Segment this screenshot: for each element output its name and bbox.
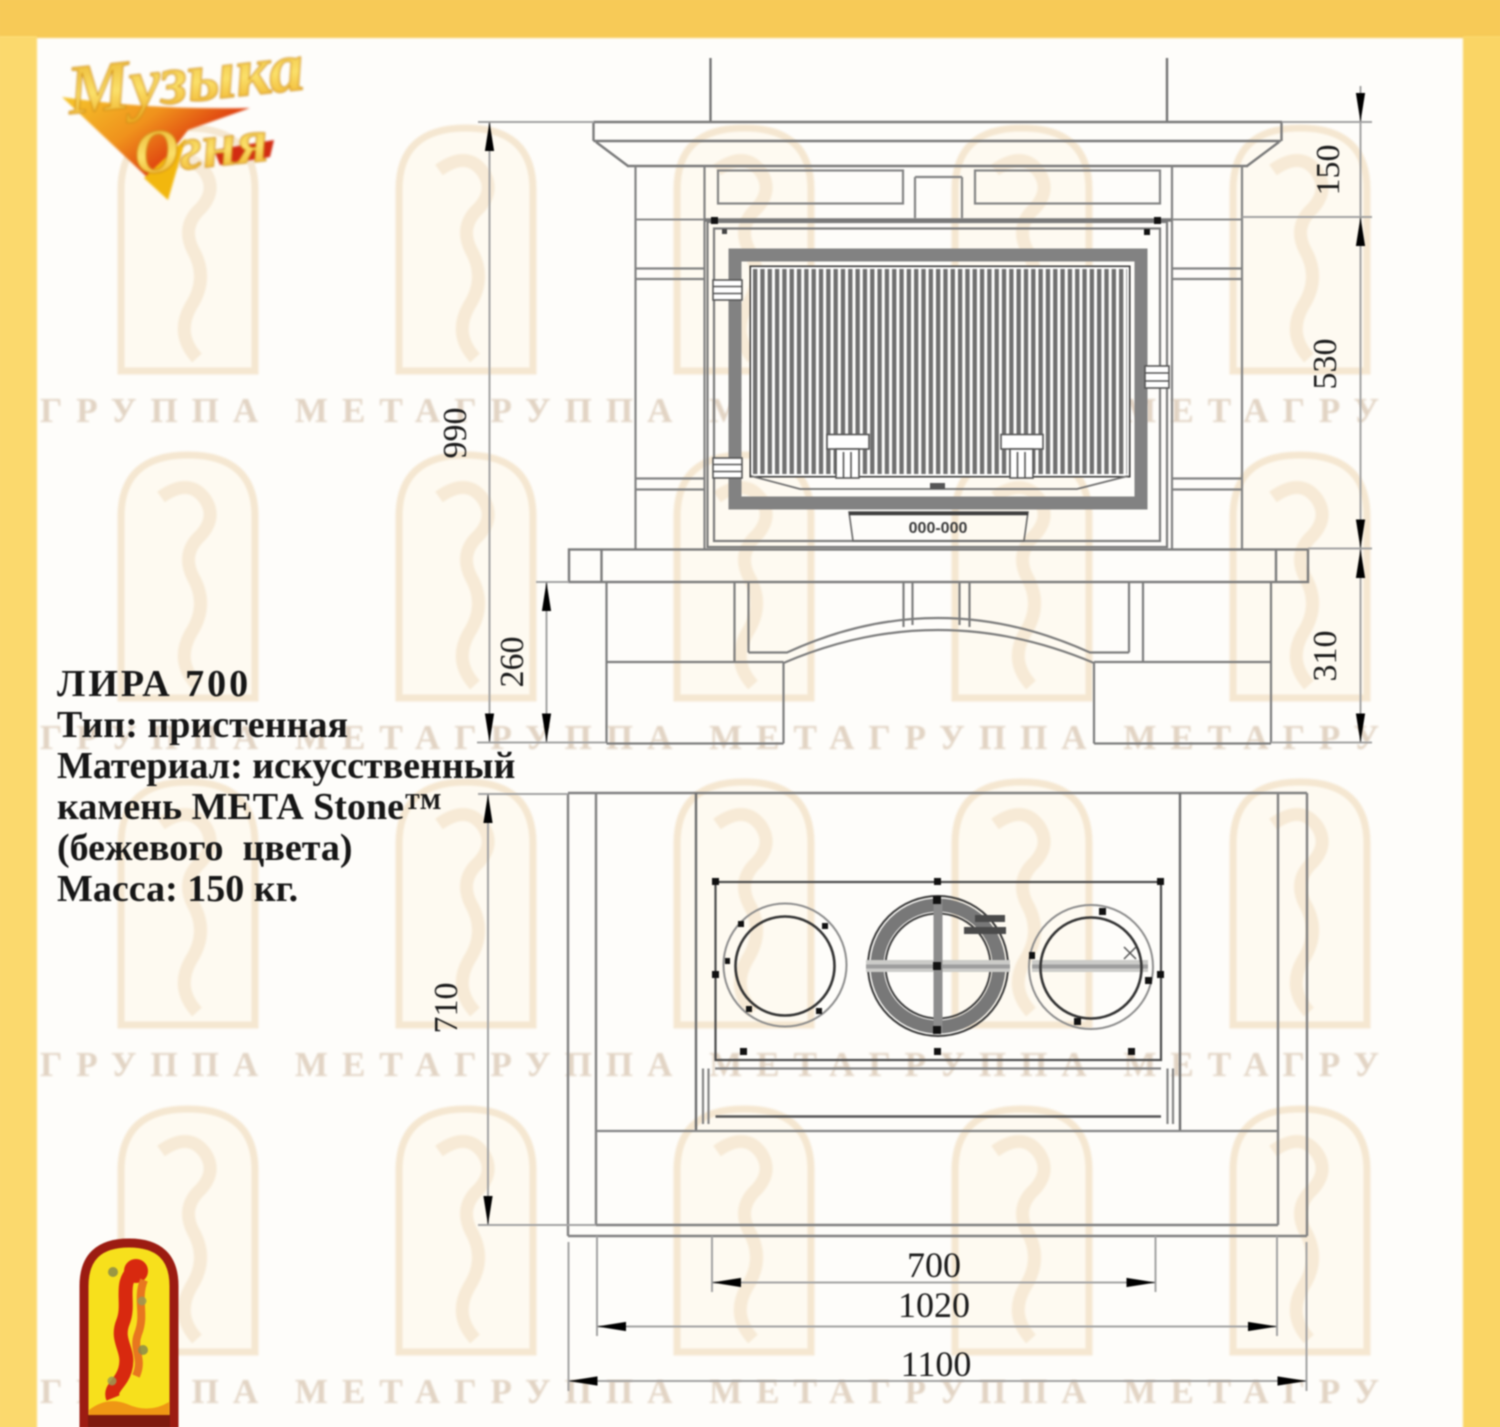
svg-text:150: 150 [1310, 145, 1347, 196]
svg-text:1020: 1020 [898, 1285, 970, 1325]
svg-text:710: 710 [428, 983, 465, 1034]
svg-text:1100: 1100 [901, 1344, 972, 1384]
svg-text:310: 310 [1307, 631, 1344, 682]
svg-text:700: 700 [907, 1245, 961, 1285]
svg-text:000-000: 000-000 [909, 520, 968, 537]
svg-text:530: 530 [1307, 339, 1344, 390]
svg-text:990: 990 [437, 408, 474, 459]
